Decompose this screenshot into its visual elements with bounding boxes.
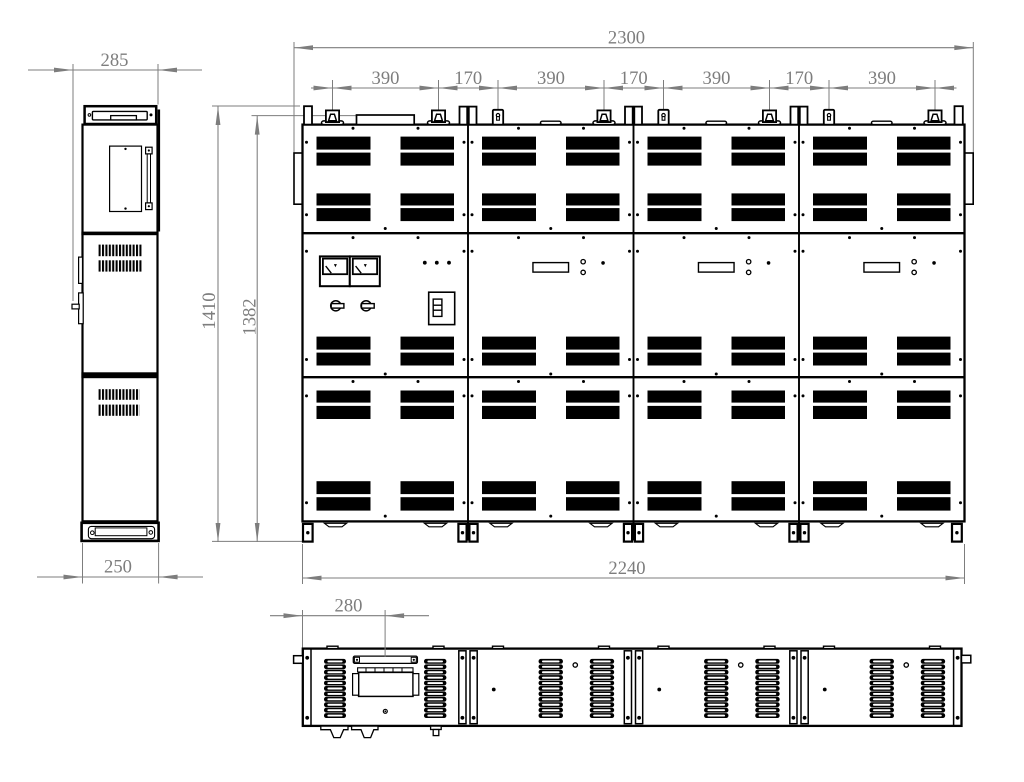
svg-text:390: 390 bbox=[703, 68, 731, 89]
svg-text:390: 390 bbox=[868, 68, 896, 89]
svg-text:390: 390 bbox=[537, 68, 565, 89]
svg-text:170: 170 bbox=[454, 68, 482, 89]
svg-text:250: 250 bbox=[104, 557, 132, 578]
svg-text:2240: 2240 bbox=[608, 558, 645, 579]
svg-text:285: 285 bbox=[101, 50, 129, 71]
svg-text:2300: 2300 bbox=[608, 28, 645, 49]
svg-text:1410: 1410 bbox=[199, 292, 220, 329]
svg-text:390: 390 bbox=[372, 68, 400, 89]
svg-text:170: 170 bbox=[785, 68, 813, 89]
svg-text:170: 170 bbox=[620, 68, 648, 89]
svg-text:280: 280 bbox=[335, 596, 363, 617]
